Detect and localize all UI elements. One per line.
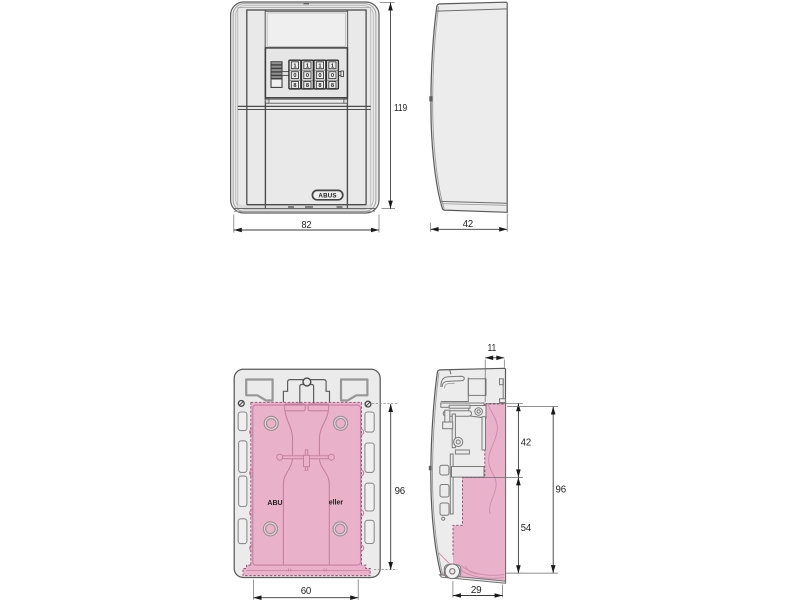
svg-text:1: 1 — [293, 63, 296, 69]
svg-text:96: 96 — [556, 484, 567, 495]
svg-text:29: 29 — [471, 585, 482, 596]
svg-text:1: 1 — [331, 63, 334, 69]
svg-text:42: 42 — [521, 437, 532, 448]
svg-text:54: 54 — [521, 523, 532, 534]
svg-text:96: 96 — [395, 486, 406, 497]
svg-text:11: 11 — [488, 343, 497, 354]
svg-text:60: 60 — [301, 586, 312, 597]
svg-text:eller: eller — [329, 500, 344, 507]
svg-text:1: 1 — [318, 63, 321, 69]
svg-text:8: 8 — [293, 83, 296, 89]
svg-text:8: 8 — [318, 83, 321, 89]
svg-text:42: 42 — [463, 219, 474, 230]
svg-text:ABUS: ABUS — [318, 192, 336, 199]
svg-text:0: 0 — [331, 73, 334, 79]
svg-text:119: 119 — [394, 103, 408, 114]
svg-text:8: 8 — [331, 83, 334, 89]
svg-text:0: 0 — [293, 73, 296, 79]
svg-text:0: 0 — [306, 73, 309, 79]
svg-text:8: 8 — [306, 83, 309, 89]
svg-text:82: 82 — [301, 220, 312, 231]
svg-text:0: 0 — [318, 73, 321, 79]
svg-text:ABU: ABU — [267, 500, 282, 507]
svg-text:1: 1 — [306, 63, 309, 69]
